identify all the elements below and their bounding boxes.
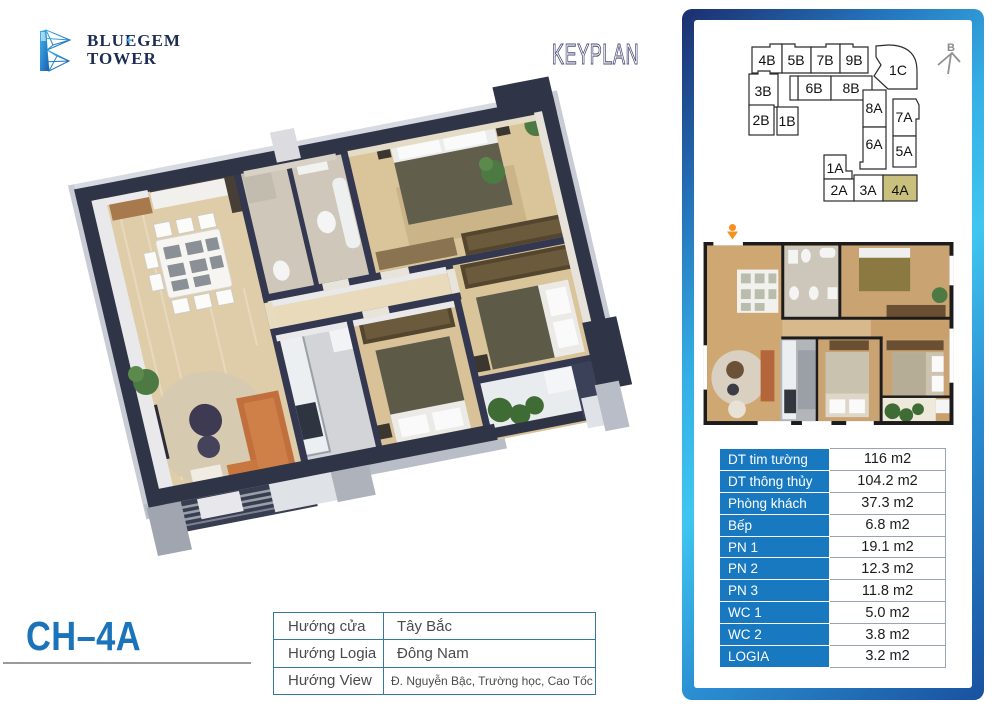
svg-text:7B: 7B (816, 52, 833, 68)
svg-text:7A: 7A (895, 109, 913, 125)
svg-text:5B: 5B (787, 52, 804, 68)
svg-text:8B: 8B (842, 80, 859, 96)
svg-text:8A: 8A (865, 100, 883, 116)
svg-text:1B: 1B (778, 113, 795, 129)
svg-text:9B: 9B (845, 52, 862, 68)
svg-text:KEYPLAN: KEYPLAN (552, 39, 639, 70)
svg-text:2A: 2A (830, 182, 848, 198)
svg-text:1A: 1A (826, 160, 844, 176)
svg-text:3B: 3B (754, 83, 771, 99)
svg-text:3A: 3A (859, 182, 877, 198)
svg-text:B: B (947, 42, 955, 54)
svg-text:5A: 5A (895, 143, 913, 159)
svg-text:4A: 4A (891, 182, 909, 198)
svg-text:4B: 4B (758, 52, 775, 68)
svg-text:1C: 1C (889, 62, 907, 78)
svg-text:2B: 2B (752, 112, 769, 128)
svg-text:6B: 6B (805, 80, 822, 96)
svg-text:6A: 6A (865, 136, 883, 152)
